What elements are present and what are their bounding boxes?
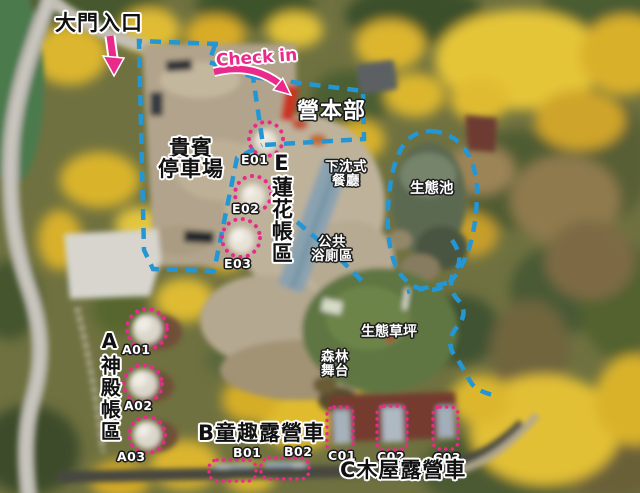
site-label-e02: E02 bbox=[232, 203, 259, 216]
site-label-b02: B02 bbox=[284, 446, 312, 459]
site-ring-a03 bbox=[129, 417, 165, 453]
b-campers-area-label: B童趣露營車 bbox=[198, 423, 325, 444]
site-box-c03 bbox=[433, 407, 458, 449]
site-box-b02 bbox=[261, 458, 309, 479]
gate-arrow-icon bbox=[103, 36, 124, 76]
site-label-e01: E01 bbox=[241, 154, 268, 167]
headquarters-label: 營本部 bbox=[297, 101, 366, 123]
vip-parking-label: 貴賓 停車場 bbox=[150, 138, 232, 181]
e-lotus-area-label: E蓮花帳區 bbox=[270, 151, 291, 264]
c-campers-area-label: C木屋露營車 bbox=[340, 460, 466, 481]
pond-outline bbox=[388, 131, 477, 290]
site-ring-e03 bbox=[222, 219, 260, 257]
gate-label: 大門入口 bbox=[55, 13, 143, 34]
site-box-c01 bbox=[327, 407, 353, 452]
restaurant-label: 下沈式 餐廳 bbox=[318, 161, 374, 189]
creek-route bbox=[450, 240, 497, 396]
pond-label: 生態池 bbox=[410, 182, 454, 197]
site-box-c02 bbox=[377, 406, 407, 450]
site-box-b01 bbox=[209, 460, 256, 481]
route-dashed-lines bbox=[139, 41, 497, 396]
site-label-a01: A01 bbox=[122, 344, 151, 357]
campground-aerial-map: 大門入口 Check in 營本部 貴賓 停車場 E蓮花帳區 E01 E02 E… bbox=[0, 0, 640, 493]
a-temple-area-label: A神殿帳區 bbox=[99, 329, 119, 443]
lawn-label: 生態草坪 bbox=[361, 325, 417, 339]
site-label-a03: A03 bbox=[117, 451, 146, 464]
forest-stage-label: 森林 舞台 bbox=[312, 351, 358, 379]
public-bath-label: 公共 浴廁區 bbox=[306, 236, 358, 264]
site-label-b01: B01 bbox=[233, 447, 261, 460]
site-label-a02: A02 bbox=[124, 400, 153, 413]
site-label-e03: E03 bbox=[224, 258, 251, 271]
